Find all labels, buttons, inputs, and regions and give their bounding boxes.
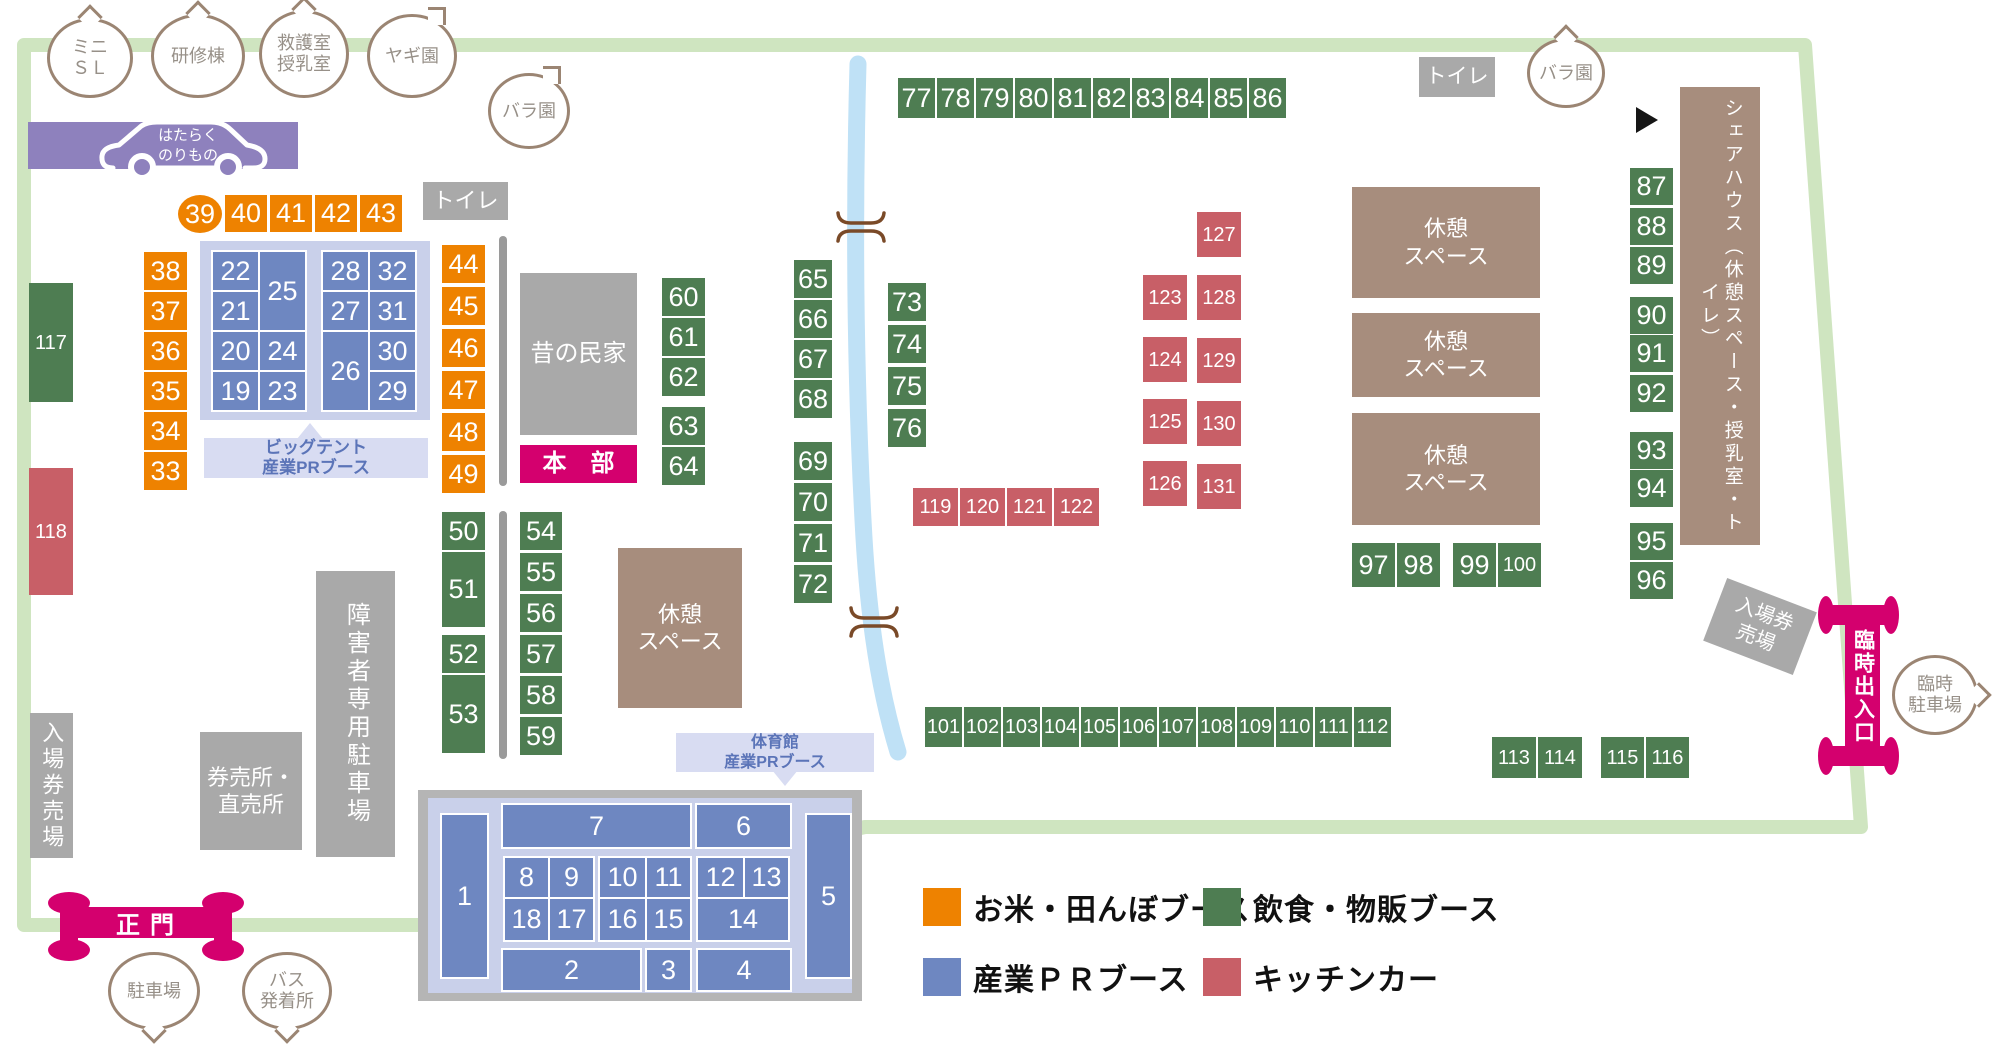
toilet-left: トイレ <box>423 182 508 220</box>
booth-127: 127 <box>1197 212 1241 257</box>
booth-81: 81 <box>1054 78 1091 118</box>
booth-38: 38 <box>144 252 187 290</box>
booth-72: 72 <box>794 565 832 603</box>
booth-78: 78 <box>937 78 974 118</box>
booth-53: 53 <box>442 675 485 753</box>
booth-93: 93 <box>1630 432 1673 469</box>
booth-129: 129 <box>1197 338 1241 383</box>
booth-5: 5 <box>807 815 850 977</box>
gym-label: 体育館 産業PRブース <box>676 733 874 772</box>
booth-30: 30 <box>370 332 415 370</box>
share-house: シェアハウス（休憩スペース・授乳室・トイレ） <box>1680 87 1760 545</box>
booth-56: 56 <box>520 594 562 632</box>
booth-96: 96 <box>1630 562 1673 599</box>
booth-59: 59 <box>520 717 562 755</box>
festival-venue-map: はたらく のりもの 正門 臨時出入口 394041424338373635343… <box>0 0 2000 1051</box>
booth-97: 97 <box>1352 543 1395 587</box>
booth-113: 113 <box>1492 737 1536 778</box>
disabled-parking: 障害者専用駐車場 <box>316 571 395 857</box>
booth-17: 17 <box>550 899 593 940</box>
booth-2: 2 <box>503 950 640 990</box>
booth-87: 87 <box>1630 168 1673 205</box>
booth-124: 124 <box>1143 337 1187 382</box>
booth-69: 69 <box>794 442 832 480</box>
booth-35: 35 <box>144 372 187 410</box>
training-bldg-bubble: 研修棟 <box>151 14 245 98</box>
goat-garden-bubble-tail <box>428 7 446 25</box>
booth-71: 71 <box>794 524 832 562</box>
booth-26: 26 <box>323 332 368 410</box>
booth-109: 109 <box>1237 707 1274 747</box>
booth-9: 9 <box>550 858 593 897</box>
booth-37: 37 <box>144 292 187 330</box>
booth-16: 16 <box>600 899 645 940</box>
booth-76: 76 <box>888 409 926 447</box>
booth-31: 31 <box>370 292 415 330</box>
booth-111: 111 <box>1315 707 1352 747</box>
legend-swatch-red <box>1203 958 1241 996</box>
booth-104: 104 <box>1042 707 1079 747</box>
big-tent-label: ビッグテント 産業PRブース <box>204 438 428 478</box>
booth-118: 118 <box>29 468 73 595</box>
booth-83: 83 <box>1132 78 1169 118</box>
rest-space-3: 休憩 スペース <box>1352 313 1540 397</box>
booth-106: 106 <box>1120 707 1157 747</box>
booth-110: 110 <box>1276 707 1313 747</box>
rose-garden-left-bubble-tail <box>543 66 561 84</box>
booth-115: 115 <box>1601 737 1644 778</box>
booth-12: 12 <box>698 858 743 897</box>
booth-119: 119 <box>913 488 958 526</box>
booth-79: 79 <box>976 78 1013 118</box>
booth-11: 11 <box>647 858 690 897</box>
booth-125: 125 <box>1143 399 1187 444</box>
arrow-right-icon <box>1636 107 1658 133</box>
booth-99: 99 <box>1453 543 1496 587</box>
path-divider-bottom <box>499 511 507 759</box>
booth-58: 58 <box>520 676 562 714</box>
booth-18: 18 <box>505 899 548 940</box>
goat-garden-bubble: ヤギ園 <box>367 14 457 98</box>
booth-102: 102 <box>964 707 1001 747</box>
booth-4: 4 <box>698 950 790 990</box>
booth-36: 36 <box>144 332 187 370</box>
booth-47: 47 <box>442 371 485 409</box>
booth-101: 101 <box>925 707 962 747</box>
booth-40: 40 <box>225 195 267 232</box>
river <box>856 64 898 752</box>
booth-89: 89 <box>1630 247 1673 284</box>
booth-67: 67 <box>794 340 832 378</box>
ticket-direct-sales: 券売所・ 直売所 <box>200 732 302 850</box>
booth-22: 22 <box>213 252 258 290</box>
rest-space-1: 休憩 スペース <box>618 548 742 708</box>
legend-swatch-orange <box>923 888 961 926</box>
ticket-booth-left: 入場券売場 <box>30 713 73 858</box>
booth-105: 105 <box>1081 707 1118 747</box>
booth-86: 86 <box>1249 78 1286 118</box>
booth-13: 13 <box>745 858 788 897</box>
booth-116: 116 <box>1646 737 1689 778</box>
rest-space-4: 休憩 スペース <box>1352 413 1540 525</box>
legend-swatch-green <box>1203 888 1241 926</box>
booth-92: 92 <box>1630 375 1673 412</box>
booth-66: 66 <box>794 300 832 338</box>
booth-29: 29 <box>370 372 415 410</box>
booth-75: 75 <box>888 367 926 405</box>
rose-garden-left-bubble: バラ園 <box>488 73 570 149</box>
working-vehicles-label: はたらく のりもの <box>128 126 248 170</box>
booth-19: 19 <box>213 372 258 410</box>
booth-98: 98 <box>1397 543 1440 587</box>
legend-label-blue: 産業ＰＲブース <box>973 958 1189 996</box>
booth-70: 70 <box>794 483 832 521</box>
booth-62: 62 <box>662 358 705 396</box>
booth-50: 50 <box>442 512 485 550</box>
legend-swatch-blue <box>923 958 961 996</box>
path-divider-top <box>499 236 507 486</box>
old-folk-house: 昔の民家 <box>520 273 637 435</box>
booth-88: 88 <box>1630 208 1673 245</box>
booth-8: 8 <box>505 858 548 897</box>
booth-121: 121 <box>1007 488 1052 526</box>
booth-44: 44 <box>442 245 485 283</box>
booth-51: 51 <box>442 552 485 627</box>
headquarters: 本 部 <box>520 445 637 483</box>
booth-123: 123 <box>1143 275 1187 320</box>
booth-49: 49 <box>442 455 485 493</box>
booth-61: 61 <box>662 318 705 356</box>
booth-77: 77 <box>898 78 935 118</box>
booth-85: 85 <box>1210 78 1247 118</box>
booth-100: 100 <box>1498 543 1541 587</box>
temporary-gate-label: 臨時出入口 <box>1845 619 1880 753</box>
booth-130: 130 <box>1197 401 1241 446</box>
booth-122: 122 <box>1054 488 1099 526</box>
booth-28: 28 <box>323 252 368 290</box>
booth-48: 48 <box>442 413 485 451</box>
booth-39: 39 <box>178 195 222 233</box>
booth-95: 95 <box>1630 523 1673 560</box>
big-tent-label-pointer <box>297 423 323 439</box>
booth-120: 120 <box>960 488 1005 526</box>
booth-54: 54 <box>520 512 562 550</box>
booth-84: 84 <box>1171 78 1208 118</box>
booth-65: 65 <box>794 260 832 298</box>
first-aid-nursing-bubble: 救護室 授乳室 <box>259 10 349 98</box>
booth-108: 108 <box>1198 707 1235 747</box>
booth-33: 33 <box>144 452 187 490</box>
booth-60: 60 <box>662 278 705 316</box>
booth-128: 128 <box>1197 275 1241 320</box>
gym-label-pointer <box>772 770 798 786</box>
temp-parking-bubble: 臨時 駐車場 <box>1892 655 1978 735</box>
booth-117: 117 <box>29 283 73 402</box>
booth-42: 42 <box>315 195 357 232</box>
booth-41: 41 <box>270 195 312 232</box>
booth-68: 68 <box>794 380 832 418</box>
booth-27: 27 <box>323 292 368 330</box>
booth-25: 25 <box>260 252 305 330</box>
booth-32: 32 <box>370 252 415 290</box>
booth-103: 103 <box>1003 707 1040 747</box>
booth-15: 15 <box>647 899 690 940</box>
main-gate-label: 正門 <box>77 907 223 938</box>
booth-7: 7 <box>503 805 690 847</box>
booth-3: 3 <box>647 950 690 990</box>
booth-126: 126 <box>1143 461 1187 506</box>
booth-10: 10 <box>600 858 645 897</box>
booth-107: 107 <box>1159 707 1196 747</box>
booth-73: 73 <box>888 283 926 321</box>
booth-131: 131 <box>1197 464 1241 509</box>
booth-6: 6 <box>697 805 790 847</box>
booth-112: 112 <box>1354 707 1391 747</box>
legend-label-green: 飲食・物販ブース <box>1253 888 1500 926</box>
booth-57: 57 <box>520 635 562 673</box>
booth-24: 24 <box>260 332 305 370</box>
booth-90: 90 <box>1630 297 1673 334</box>
mini-sl-bubble: ミニ ＳＬ <box>47 18 133 98</box>
booth-63: 63 <box>662 407 705 445</box>
booth-43: 43 <box>360 195 402 232</box>
booth-45: 45 <box>442 287 485 325</box>
booth-82: 82 <box>1093 78 1130 118</box>
booth-23: 23 <box>260 372 305 410</box>
booth-1: 1 <box>442 815 487 977</box>
booth-14: 14 <box>698 899 788 940</box>
booth-20: 20 <box>213 332 258 370</box>
booth-74: 74 <box>888 325 926 363</box>
booth-34: 34 <box>144 412 187 450</box>
rest-space-2: 休憩 スペース <box>1352 187 1540 298</box>
toilet-right: トイレ <box>1419 57 1495 97</box>
booth-46: 46 <box>442 329 485 367</box>
booth-21: 21 <box>213 292 258 330</box>
legend-label-red: キッチンカー <box>1253 958 1439 996</box>
booth-80: 80 <box>1015 78 1052 118</box>
booth-52: 52 <box>442 635 485 673</box>
booth-55: 55 <box>520 553 562 591</box>
booth-114: 114 <box>1538 737 1582 778</box>
booth-91: 91 <box>1630 335 1673 372</box>
booth-64: 64 <box>662 447 705 485</box>
booth-94: 94 <box>1630 470 1673 507</box>
